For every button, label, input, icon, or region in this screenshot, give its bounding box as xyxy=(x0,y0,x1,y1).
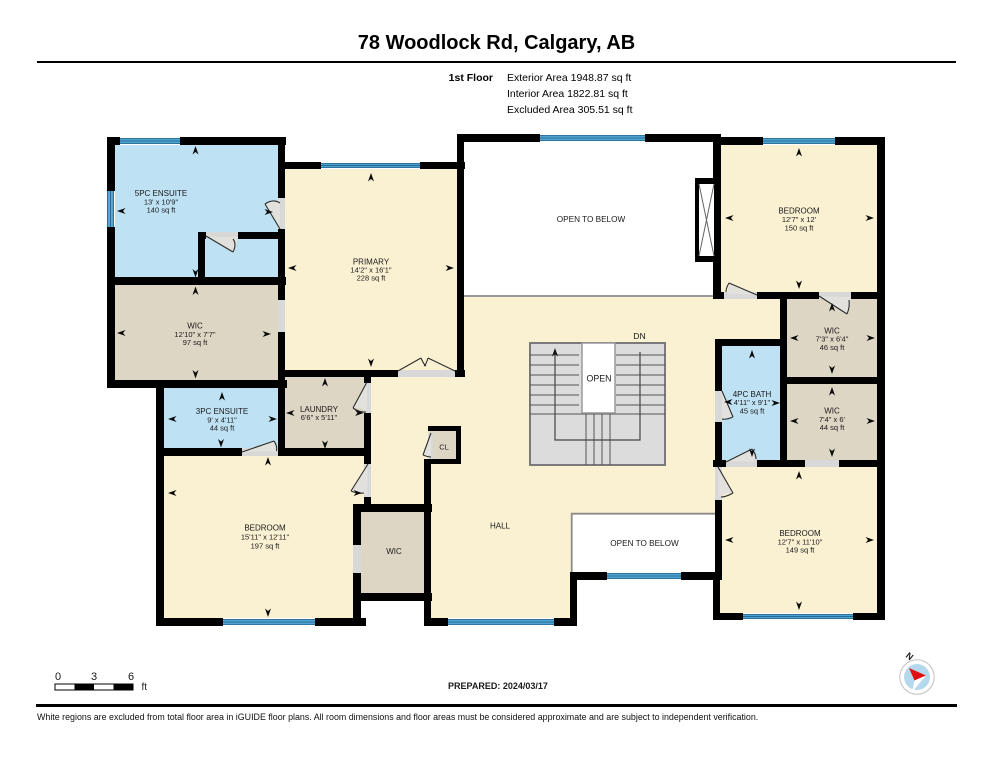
svg-text:197 sq ft: 197 sq ft xyxy=(251,541,281,550)
svg-text:228 sq ft: 228 sq ft xyxy=(357,274,387,283)
svg-text:97 sq ft: 97 sq ft xyxy=(183,338,209,347)
svg-text:CL: CL xyxy=(439,443,449,452)
svg-text:149 sq ft: 149 sq ft xyxy=(786,546,816,555)
svg-text:150 sq ft: 150 sq ft xyxy=(785,224,815,233)
svg-text:0: 0 xyxy=(55,671,61,683)
svg-text:6: 6 xyxy=(128,671,134,683)
svg-text:140 sq ft: 140 sq ft xyxy=(147,206,177,215)
svg-text:44 sq ft: 44 sq ft xyxy=(210,424,236,433)
svg-text:OPEN TO BELOW: OPEN TO BELOW xyxy=(557,215,626,224)
svg-text:3: 3 xyxy=(91,671,97,683)
svg-text:6'6" x 5'11": 6'6" x 5'11" xyxy=(301,413,338,422)
svg-text:44 sq ft: 44 sq ft xyxy=(820,423,846,432)
svg-text:ft: ft xyxy=(142,682,148,693)
svg-text:OPEN TO BELOW: OPEN TO BELOW xyxy=(610,539,679,548)
svg-text:HALL: HALL xyxy=(490,522,511,531)
svg-text:46 sq ft: 46 sq ft xyxy=(820,343,846,352)
svg-text:WIC: WIC xyxy=(386,547,402,556)
svg-text:45 sq ft: 45 sq ft xyxy=(740,406,766,415)
svg-text:15'11" x 12'11": 15'11" x 12'11" xyxy=(241,532,290,541)
svg-text:OPEN: OPEN xyxy=(587,374,612,384)
svg-text:DN: DN xyxy=(633,331,645,341)
